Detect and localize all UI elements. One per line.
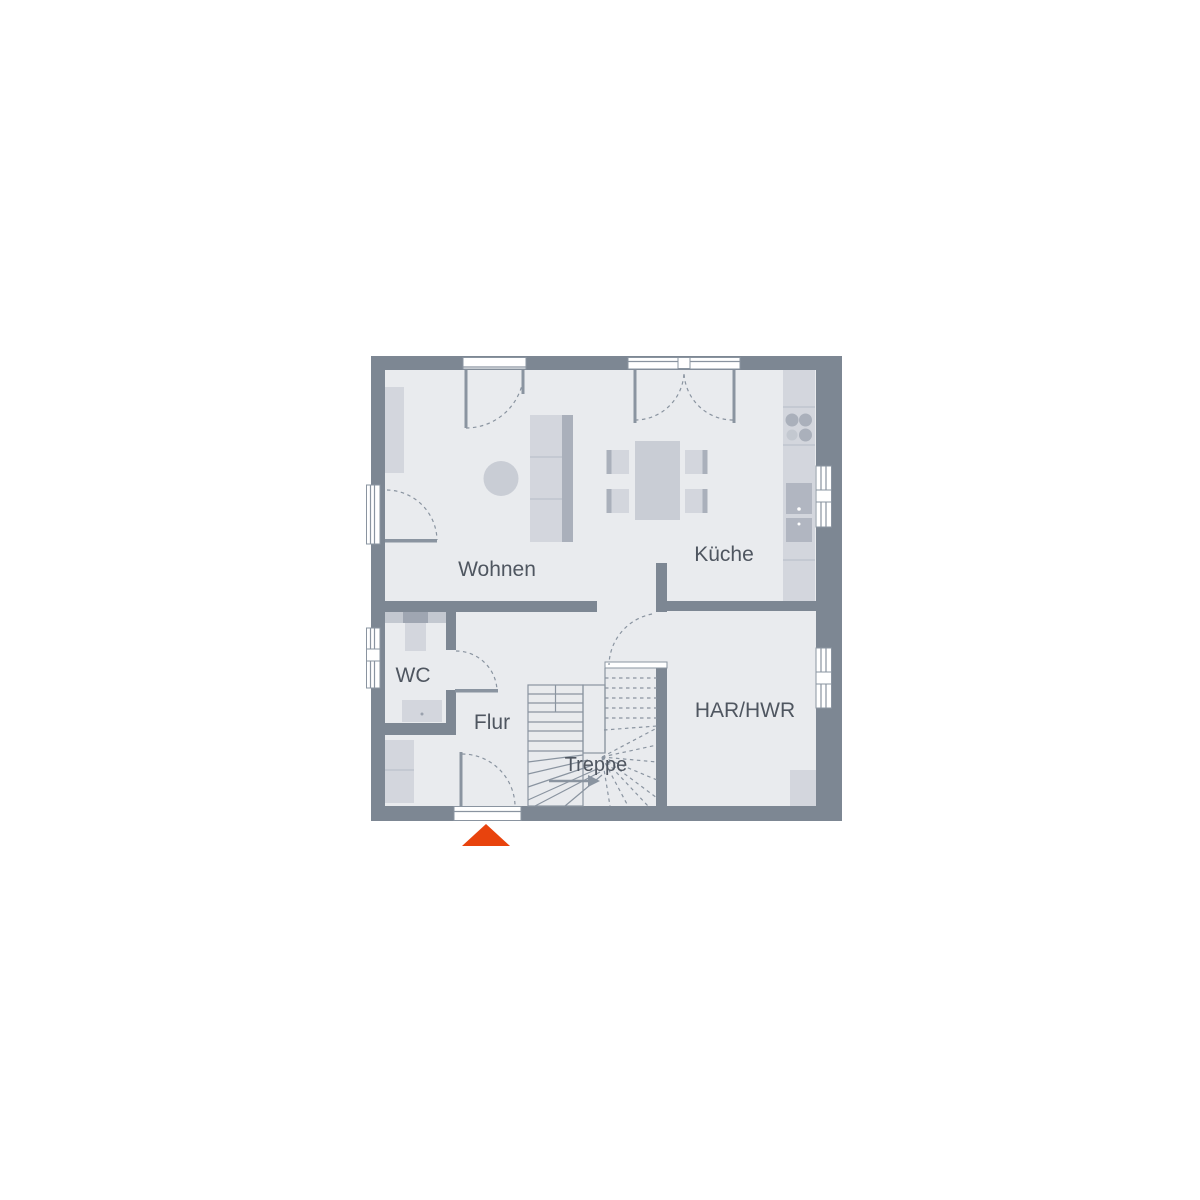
chair-back (607, 450, 612, 474)
cooktop-burner (799, 414, 812, 427)
chair-seat (685, 450, 703, 474)
door-leaf (733, 370, 736, 423)
window-center-marker (816, 490, 832, 502)
chair-back (703, 489, 708, 513)
wardrobe (385, 740, 414, 803)
door-leaf (634, 370, 637, 423)
door-leaf (460, 752, 463, 806)
wall-wc-south (385, 723, 456, 735)
sink-drain (797, 507, 801, 511)
door-leaf (385, 539, 437, 543)
floor-area (385, 370, 816, 806)
wc-door-leaf (455, 689, 498, 693)
cooktop-burner (787, 430, 798, 441)
wall-stair-right (656, 665, 667, 806)
sofa-seat (530, 415, 562, 542)
entrance-marker-triangle (462, 824, 510, 846)
wall-wc-right-upper (446, 612, 456, 650)
floor-plan-drawing: Wohnen Küche WC Flur Treppe HAR/HWR (0, 0, 1200, 1200)
entrance-door (454, 807, 521, 821)
cooktop-burner (799, 429, 812, 442)
chair-seat (685, 489, 703, 513)
side-table (484, 461, 519, 496)
har-equipment (790, 770, 816, 806)
window-center-marker (678, 358, 690, 369)
room-label-wohnen: Wohnen (458, 558, 536, 581)
sideboard (385, 387, 404, 473)
room-label-flur: Flur (474, 711, 510, 734)
wall-wc-right-lower (446, 690, 456, 723)
toilet-tank (403, 612, 428, 623)
dining-table (635, 441, 680, 520)
chair-seat (612, 489, 630, 513)
room-label-treppe: Treppe (565, 754, 628, 776)
dishwasher-knob (798, 523, 801, 526)
wall-kueche-har (656, 601, 816, 611)
wall-wohnen-flur (385, 601, 597, 612)
chair-back (703, 450, 708, 474)
wohnen-side-door (367, 485, 381, 544)
window-center-marker (367, 649, 381, 661)
door-leaf (465, 370, 468, 428)
toilet-bowl (405, 623, 426, 651)
room-label-wc: WC (396, 664, 431, 687)
window-center-marker (816, 672, 832, 684)
dishwasher (786, 518, 812, 542)
washbasin-drain (421, 713, 424, 716)
cooktop-burner (786, 414, 799, 427)
chair-back (607, 489, 612, 513)
wc-washbasin (402, 700, 442, 722)
floor-plan-page: Wohnen Küche WC Flur Treppe HAR/HWR (0, 0, 1200, 1200)
sofa-backrest (562, 415, 573, 542)
stair-top-threshold (605, 662, 667, 668)
chair-seat (612, 450, 630, 474)
kitchen-counter (783, 370, 815, 601)
room-label-har-hwr: HAR/HWR (695, 699, 795, 722)
room-label-kueche: Küche (694, 543, 754, 566)
